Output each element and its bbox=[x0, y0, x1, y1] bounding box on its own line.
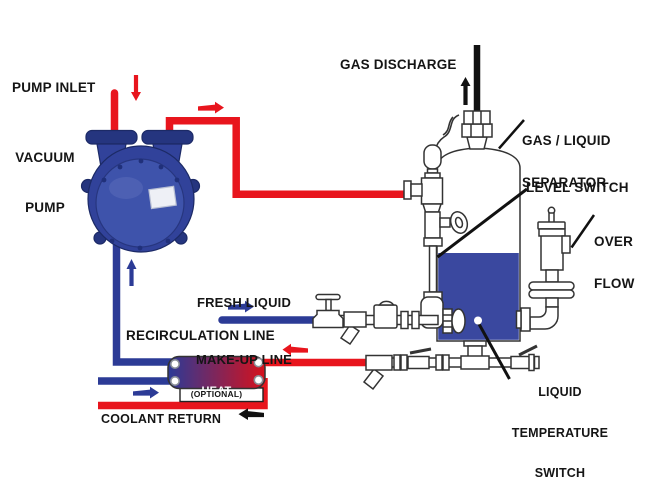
level-switch-label: LEVEL SWITCH bbox=[526, 181, 629, 195]
optional-note: (OPTIONAL) bbox=[168, 390, 265, 399]
solenoid-valve bbox=[424, 145, 441, 169]
overflow-label: OVER FLOW bbox=[594, 207, 635, 305]
lever-valve-body bbox=[408, 357, 429, 369]
temp-switch-label-line2: TEMPERATURE bbox=[503, 427, 617, 441]
heat-exchanger-label: HEAT EXCHANGER bbox=[168, 359, 265, 450]
pump-inlet-label: PUMP INLET bbox=[12, 81, 96, 95]
strainer-body bbox=[344, 312, 366, 327]
arrow-up-pump-return bbox=[126, 259, 136, 286]
temp-switch-label: LIQUID TEMPERATURE SWITCH bbox=[503, 359, 617, 494]
level-sight-glass bbox=[430, 246, 437, 292]
globe-valve-body bbox=[313, 311, 343, 328]
recirculation-label: RECIRCULATION LINE bbox=[126, 329, 275, 343]
arrow-up-gas bbox=[461, 77, 471, 105]
tank-nozzle-disc bbox=[452, 309, 465, 333]
vacuum-pump bbox=[82, 131, 200, 253]
strainer-body bbox=[366, 356, 392, 371]
temp-switch-label-line3: SWITCH bbox=[503, 467, 617, 481]
gas-discharge-label: GAS DISCHARGE bbox=[340, 58, 457, 72]
separator-leader bbox=[499, 120, 524, 149]
overflow-flange bbox=[529, 290, 574, 298]
arrow-down-inlet bbox=[131, 75, 141, 101]
inlet-flange bbox=[404, 181, 411, 199]
overflow-outlet bbox=[562, 236, 570, 253]
arrow-right-discharge bbox=[198, 102, 224, 114]
temp-switch-label-line1: LIQUID bbox=[503, 386, 617, 400]
piping-diagram: PUMP INLET VACUUM PUMP GAS DISCHARGE GAS… bbox=[0, 0, 650, 499]
pump-discharge-pipe bbox=[170, 121, 407, 194]
arrow-right-coolant-supply bbox=[133, 387, 159, 399]
vacuum-pump-label-line1: VACUUM bbox=[4, 150, 86, 167]
makeup-valve-train bbox=[313, 295, 438, 345]
temp-switch-sensor-dot bbox=[474, 317, 482, 325]
solenoid-cable bbox=[435, 115, 459, 151]
overflow-label-line2: FLOW bbox=[594, 277, 635, 291]
pump-nameplate bbox=[149, 186, 176, 208]
overflow-elbow bbox=[530, 307, 558, 329]
overflow-assembly bbox=[517, 207, 575, 331]
gas-discharge-fitting bbox=[462, 111, 492, 149]
pump-return-pipe bbox=[117, 240, 173, 362]
valve-lever bbox=[410, 349, 431, 353]
inlet-block bbox=[422, 178, 443, 204]
overflow-label-line1: OVER bbox=[594, 235, 635, 249]
coolant-return-label: COOLANT RETURN bbox=[101, 412, 221, 426]
overflow-leader bbox=[572, 215, 595, 248]
tee-body bbox=[461, 356, 489, 369]
separator-label-line1: GAS / LIQUID bbox=[522, 134, 611, 148]
strainer-leg bbox=[364, 369, 383, 389]
overflow-flange bbox=[529, 282, 574, 290]
solenoid-block-valve bbox=[374, 305, 397, 328]
vacuum-pump-label: VACUUM PUMP bbox=[4, 117, 86, 233]
valve-lever bbox=[519, 346, 537, 355]
vacuum-pump-label-line2: PUMP bbox=[4, 200, 86, 217]
fresh-liquid-label-line1: FRESH LIQUID bbox=[184, 293, 304, 312]
